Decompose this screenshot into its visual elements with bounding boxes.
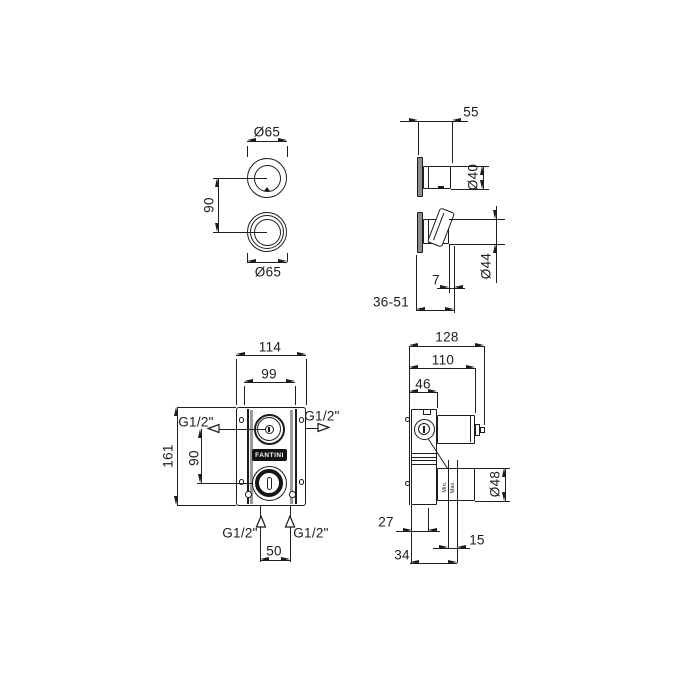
object-line	[433, 212, 445, 239]
extension-line	[236, 359, 237, 405]
extension-line	[177, 505, 236, 506]
screw-hole	[245, 491, 252, 498]
flange-hole	[299, 417, 305, 423]
extension-line	[475, 368, 476, 413]
port-line-bottom-left	[260, 505, 261, 562]
arrowhead	[445, 307, 454, 311]
extension-line	[411, 505, 412, 563]
extension-line	[247, 146, 248, 157]
arrowhead	[466, 365, 475, 369]
knob-indicator-notch	[438, 186, 444, 189]
arrowhead	[416, 307, 425, 311]
screw-hole	[289, 491, 296, 498]
extension-line	[449, 244, 450, 293]
extension-line	[484, 346, 485, 425]
arrowhead	[493, 210, 497, 219]
dim-label-depth-total: 128	[435, 330, 458, 345]
extension-line	[287, 253, 288, 262]
port-line-left	[218, 429, 269, 430]
flange-hole	[239, 417, 245, 423]
dim-label-d44: Ø44	[479, 253, 494, 279]
min-depth-label: Min.	[442, 481, 448, 492]
dim-label-d48: Ø48	[488, 470, 503, 496]
dim-label-d40: Ø40	[465, 164, 480, 190]
control-slot	[267, 477, 272, 490]
object-line	[411, 453, 437, 454]
extension-line	[437, 392, 438, 408]
arrowhead	[278, 259, 287, 263]
dim-label-height: 161	[160, 444, 175, 467]
arrowhead	[236, 352, 245, 356]
extension-line	[418, 121, 419, 155]
port-line-bottom-right	[290, 505, 291, 562]
arrowhead	[215, 178, 219, 187]
arrowhead	[448, 560, 457, 564]
port-label-right: G1/2"	[304, 409, 340, 424]
flange-hole	[405, 417, 410, 422]
arrowhead	[409, 343, 418, 347]
extension-line	[244, 386, 245, 405]
arrowhead	[215, 223, 219, 232]
dim-label-centers: 90	[186, 450, 201, 466]
flange-edge-left	[247, 409, 249, 505]
extension-line	[475, 501, 510, 502]
arrowhead	[480, 180, 484, 189]
arrowhead	[440, 285, 449, 289]
dim-label-depth: 55	[463, 105, 479, 120]
flange-hole	[299, 479, 305, 485]
plate-shading-right	[290, 410, 293, 504]
extension-line	[454, 246, 455, 313]
extension-line	[306, 359, 307, 405]
technical-drawing-sheet: Ø65 90 Ø65 55	[0, 0, 700, 700]
extension-line	[287, 146, 288, 157]
extension-line	[295, 386, 296, 405]
dim-label-gap: 7	[432, 272, 440, 287]
dim-label-d65-top: Ø65	[254, 125, 280, 140]
extension-line	[416, 255, 417, 310]
arrowhead	[247, 259, 256, 263]
extension-line	[409, 346, 410, 409]
dim-line	[409, 346, 485, 347]
cartridge-top-slot	[268, 427, 270, 432]
dim-label-27: 27	[378, 514, 394, 529]
object-line	[411, 460, 437, 461]
arrowhead	[244, 379, 253, 383]
arrowhead	[198, 429, 202, 438]
arrowhead	[403, 528, 412, 532]
extension-line	[213, 178, 267, 179]
arrowhead	[409, 118, 418, 122]
brand-logo: FANTINI	[252, 449, 287, 461]
object-line	[411, 464, 437, 465]
port-label-left: G1/2"	[178, 415, 214, 430]
flange-edge-right	[295, 409, 297, 505]
arrowhead	[480, 166, 484, 175]
arrowhead	[281, 557, 290, 561]
dim-label-width-plate: 99	[261, 366, 277, 381]
object-line	[470, 416, 471, 442]
port-arrow-right-icon	[317, 422, 330, 433]
side-port-slot	[423, 426, 425, 433]
arrowhead	[297, 352, 306, 356]
min-depth-line	[448, 460, 449, 548]
arrowhead	[428, 528, 437, 532]
arrowhead	[174, 496, 178, 505]
dim-label-depth-box: 46	[415, 376, 431, 391]
extension-line	[177, 407, 236, 408]
body-top-port	[423, 409, 431, 415]
dim-label-range: 36-51	[373, 295, 409, 310]
extension-line	[197, 483, 252, 484]
arrowhead	[475, 343, 484, 347]
flange-hole	[405, 481, 410, 486]
dim-label-port-spacing: 50	[266, 544, 282, 559]
port-label-bottom-right: G1/2"	[293, 526, 329, 541]
arrowhead	[409, 365, 418, 369]
handle-indicator-notch	[264, 187, 270, 191]
dim-label-d65-bottom: Ø65	[255, 264, 281, 279]
arrowhead	[452, 118, 461, 122]
stem-tip	[480, 427, 485, 433]
arrowhead	[286, 379, 295, 383]
extension-line	[449, 219, 505, 220]
brand-logo-text: FANTINI	[255, 452, 284, 459]
arrowhead	[439, 545, 448, 549]
object-line	[411, 457, 437, 458]
arrowhead	[410, 560, 419, 564]
max-depth-label: Max.	[450, 480, 456, 493]
arrowhead	[454, 285, 463, 289]
dim-label-centers: 90	[202, 197, 217, 213]
extension-line	[213, 232, 267, 233]
extension-line	[452, 121, 453, 163]
dim-label-width-outer: 114	[259, 340, 281, 355]
dim-line	[236, 355, 306, 356]
arrowhead	[457, 545, 466, 549]
arrowhead	[198, 474, 202, 483]
port-label-bottom-left: G1/2"	[222, 526, 258, 541]
dim-label-34: 34	[394, 547, 410, 562]
object-line	[428, 167, 429, 189]
dim-label-15: 15	[469, 532, 485, 547]
dim-label-depth-body: 110	[432, 353, 454, 368]
arrowhead	[493, 244, 497, 253]
